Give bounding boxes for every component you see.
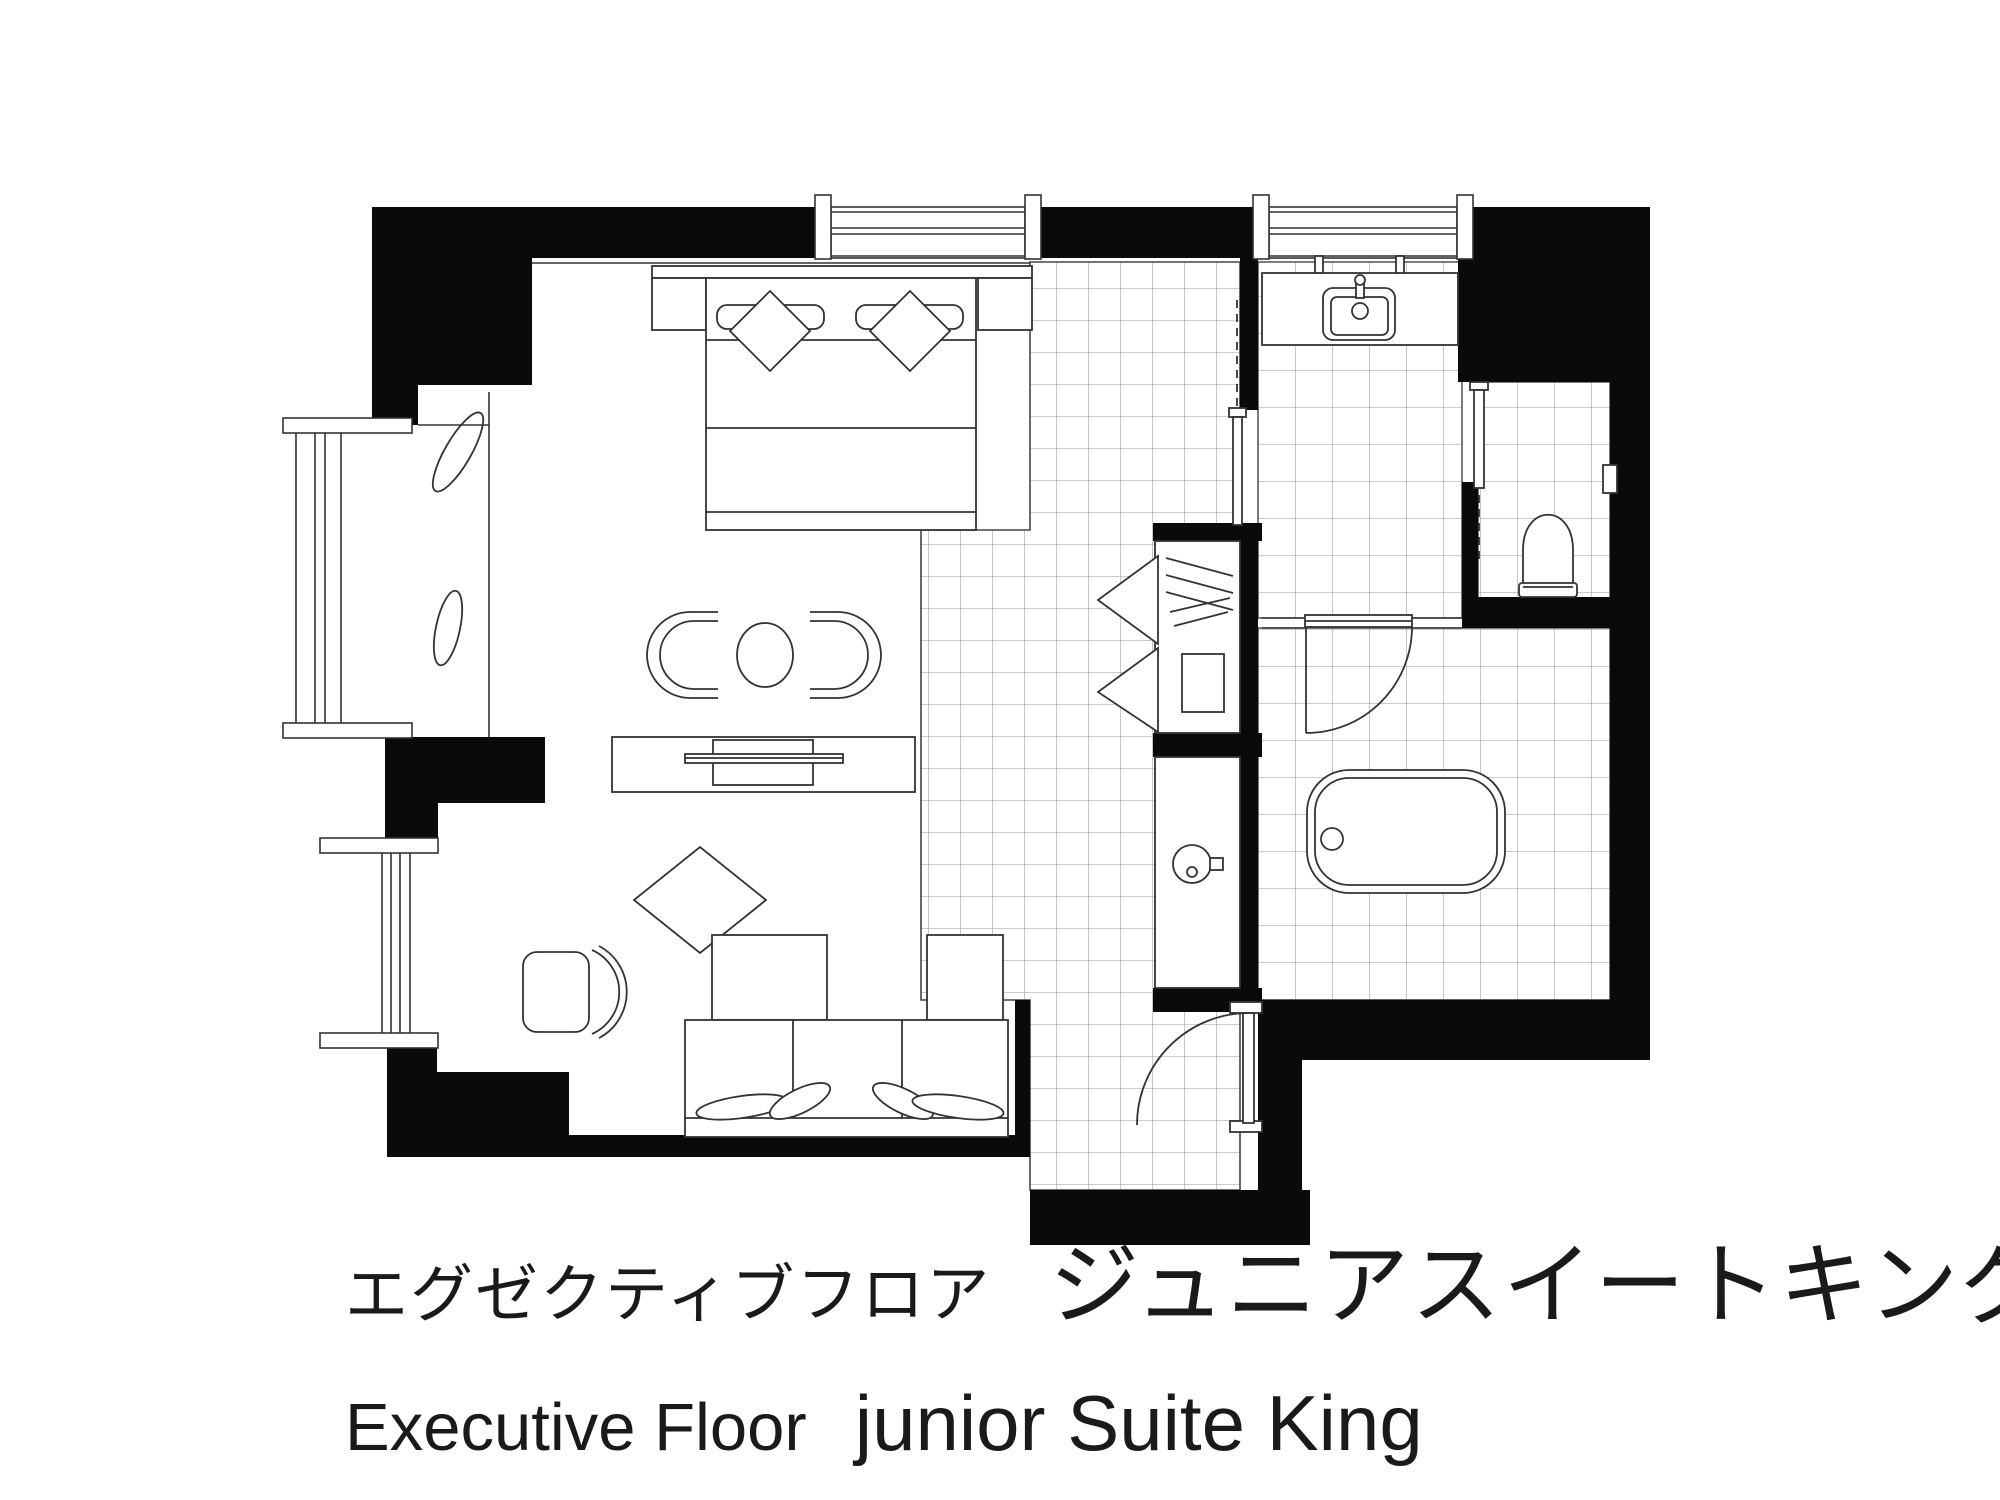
window-post-icon — [1253, 195, 1269, 259]
wall-top-right-block — [1458, 207, 1650, 382]
plant-icon — [428, 588, 467, 667]
wall-wardrobe-top-stub — [1153, 523, 1262, 541]
sliding-door-panel — [1474, 390, 1484, 488]
bathtub-icon — [1307, 770, 1505, 893]
wall-top-band-middle — [1033, 207, 1260, 258]
coffee-table — [712, 935, 827, 1020]
title-jp-floor: エグゼクティブフロア — [345, 1244, 991, 1335]
nightstand-left — [652, 278, 706, 330]
title-jp-room: ジュニアスイートキング — [1049, 1212, 2000, 1342]
king-bed — [706, 278, 976, 530]
title-en-room: junior Suite King — [855, 1378, 1423, 1469]
wall-mid-left-pillar — [385, 803, 438, 838]
entrance-door-leaf — [1243, 1013, 1254, 1123]
nightstand-right — [978, 278, 1032, 330]
wall-tick — [1396, 256, 1404, 273]
title-english: Executive Floor junior Suite King — [345, 1378, 1423, 1469]
window-cap-icon — [320, 1033, 438, 1048]
kettle-handle-icon — [1210, 858, 1223, 870]
wall-upper-left-block — [372, 207, 532, 385]
wall-bathroom-bottom-band — [1258, 1000, 1650, 1060]
toilet-paper-holder-icon — [1603, 465, 1617, 493]
window-left-upper — [283, 418, 412, 738]
window-top-2 — [1253, 195, 1473, 259]
wall-sofa-right-stub — [1015, 1000, 1030, 1157]
threshold-cap-icon — [1230, 1002, 1262, 1013]
door-cap-icon — [1470, 382, 1488, 390]
closet-shelf — [1182, 654, 1224, 712]
title-japanese: エグゼクティブフロア ジュニアスイートキング — [345, 1212, 2000, 1342]
sliding-door-panel — [1233, 417, 1242, 525]
title-en-floor: Executive Floor — [345, 1389, 807, 1466]
round-side-table — [737, 623, 793, 687]
wall-corridor-washroom-lower — [1240, 523, 1258, 1010]
desk-chair — [523, 946, 627, 1038]
tv-board — [612, 737, 915, 792]
window-post-icon — [1025, 195, 1041, 259]
window-post-icon — [1457, 195, 1473, 259]
window-cap-icon — [283, 418, 412, 433]
wall-tick — [1315, 256, 1323, 273]
door-cap-icon — [1229, 408, 1246, 417]
wall-toilet-left-stub — [1462, 482, 1478, 598]
window-post-icon — [815, 195, 831, 259]
plant-icon — [424, 407, 492, 498]
wall-bottom-left-corner — [387, 1072, 569, 1157]
lounge-chair-right — [810, 612, 881, 698]
wall-corridor-washroom-upper — [1240, 258, 1258, 410]
window-top-1 — [815, 195, 1041, 259]
wall-bottom-band — [569, 1135, 1030, 1157]
window-cap-icon — [320, 838, 438, 853]
wall-mid-left-block — [385, 737, 545, 803]
wall-wardrobe-bottom-stub — [1153, 733, 1262, 757]
kettle-icon — [1187, 867, 1197, 877]
floor-plan-page: エグゼクティブフロア ジュニアスイートキング Executive Floor j… — [0, 0, 2000, 1500]
lounge-chair-left — [647, 612, 718, 698]
headboard — [652, 266, 1032, 278]
window-left-lower — [320, 838, 438, 1048]
toilet-icon — [1519, 515, 1577, 597]
window-cap-icon — [283, 723, 412, 738]
